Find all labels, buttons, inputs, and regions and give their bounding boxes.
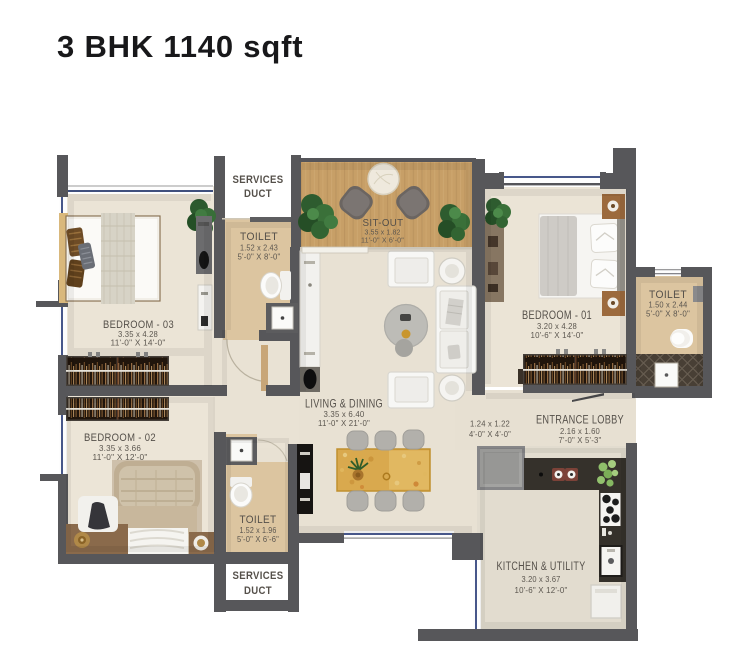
svg-text:11'-0" X 12'-0": 11'-0" X 12'-0" [93,453,148,462]
svg-text:10'-6" X 14'-0": 10'-6" X 14'-0" [531,331,584,340]
svg-text:1.52 x 2.43: 1.52 x 2.43 [240,244,278,253]
svg-text:1.52 x 1.96: 1.52 x 1.96 [240,526,277,535]
svg-text:ENTRANCE LOBBY: ENTRANCE LOBBY [536,413,624,427]
svg-text:DUCT: DUCT [244,585,272,597]
svg-text:KITCHEN & UTILITY: KITCHEN & UTILITY [497,561,586,573]
svg-text:3.20 x 3.67: 3.20 x 3.67 [522,575,561,584]
svg-text:TOILET: TOILET [649,289,687,301]
svg-text:BEDROOM - 01: BEDROOM - 01 [522,310,592,322]
svg-text:2.16 x 1.60: 2.16 x 1.60 [560,427,600,436]
svg-text:SERVICES: SERVICES [233,174,284,186]
svg-text:5'-0" X 6'-6": 5'-0" X 6'-6" [237,535,279,544]
svg-text:5'-0" X 8'-0": 5'-0" X 8'-0" [238,253,281,262]
svg-text:TOILET: TOILET [240,514,277,526]
svg-text:7'-0" X 5'-3": 7'-0" X 5'-3" [559,436,602,445]
svg-text:11'-0" X 14'-0": 11'-0" X 14'-0" [111,339,166,348]
svg-text:11'-0" X 21'-0": 11'-0" X 21'-0" [318,419,370,428]
svg-text:3.35 x 3.66: 3.35 x 3.66 [99,444,141,453]
svg-text:10'-6" X 12'-0": 10'-6" X 12'-0" [515,586,568,595]
svg-text:3 BHK 1140 sqft: 3 BHK 1140 sqft [57,29,303,64]
svg-text:11'-0" X 6'-0": 11'-0" X 6'-0" [361,236,404,245]
svg-text:BEDROOM - 02: BEDROOM - 02 [84,432,156,444]
svg-text:DUCT: DUCT [244,188,272,200]
svg-text:4'-0" X 4'-0": 4'-0" X 4'-0" [469,430,511,439]
svg-text:TOILET: TOILET [240,231,278,243]
svg-text:1.24 x 1.22: 1.24 x 1.22 [470,420,510,429]
svg-text:SERVICES: SERVICES [233,570,284,582]
svg-text:3.35 x 6.40: 3.35 x 6.40 [324,410,365,419]
svg-text:1.50 x 2.44: 1.50 x 2.44 [649,301,688,310]
svg-text:3.20 x 4.28: 3.20 x 4.28 [537,322,577,331]
svg-text:LIVING & DINING: LIVING & DINING [305,397,383,411]
svg-text:5'-0" X 8'-0": 5'-0" X 8'-0" [646,310,690,319]
